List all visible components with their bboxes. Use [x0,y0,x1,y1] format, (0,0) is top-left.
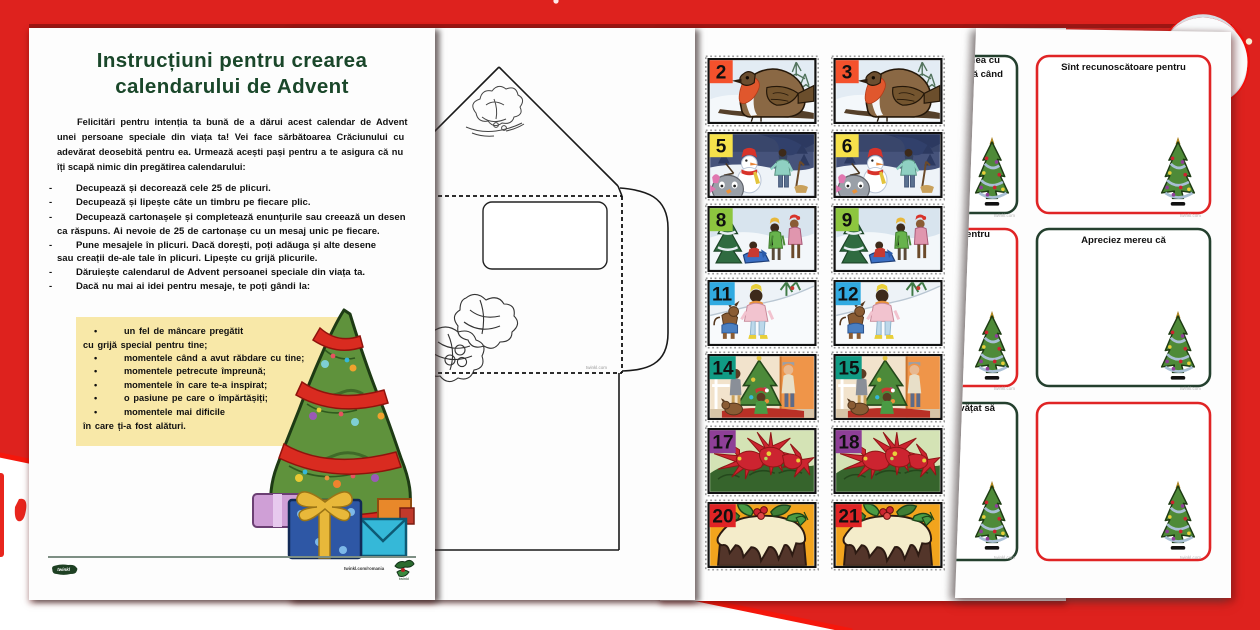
svg-text:8: 8 [716,211,727,232]
svg-text:twinkl: twinkl [399,576,409,581]
svg-text:11: 11 [712,285,733,306]
svg-text:twinkl.com: twinkl.com [586,365,607,370]
svg-text:14: 14 [712,359,734,380]
svg-text:20: 20 [712,507,733,528]
svg-text:twinkl.com: twinkl.com [994,555,1015,560]
svg-text:5: 5 [716,137,727,158]
svg-text:twinkl: twinkl [57,567,71,572]
svg-text:twinkl.com: twinkl.com [994,213,1015,218]
svg-text:twinkl.com: twinkl.com [1180,386,1201,391]
svg-text:twinkl.com: twinkl.com [1180,555,1201,560]
svg-text:2: 2 [716,63,727,84]
svg-text:17: 17 [712,433,733,454]
svg-text:twinkl.com: twinkl.com [1180,213,1201,218]
svg-text:twinkl.com: twinkl.com [994,386,1015,391]
